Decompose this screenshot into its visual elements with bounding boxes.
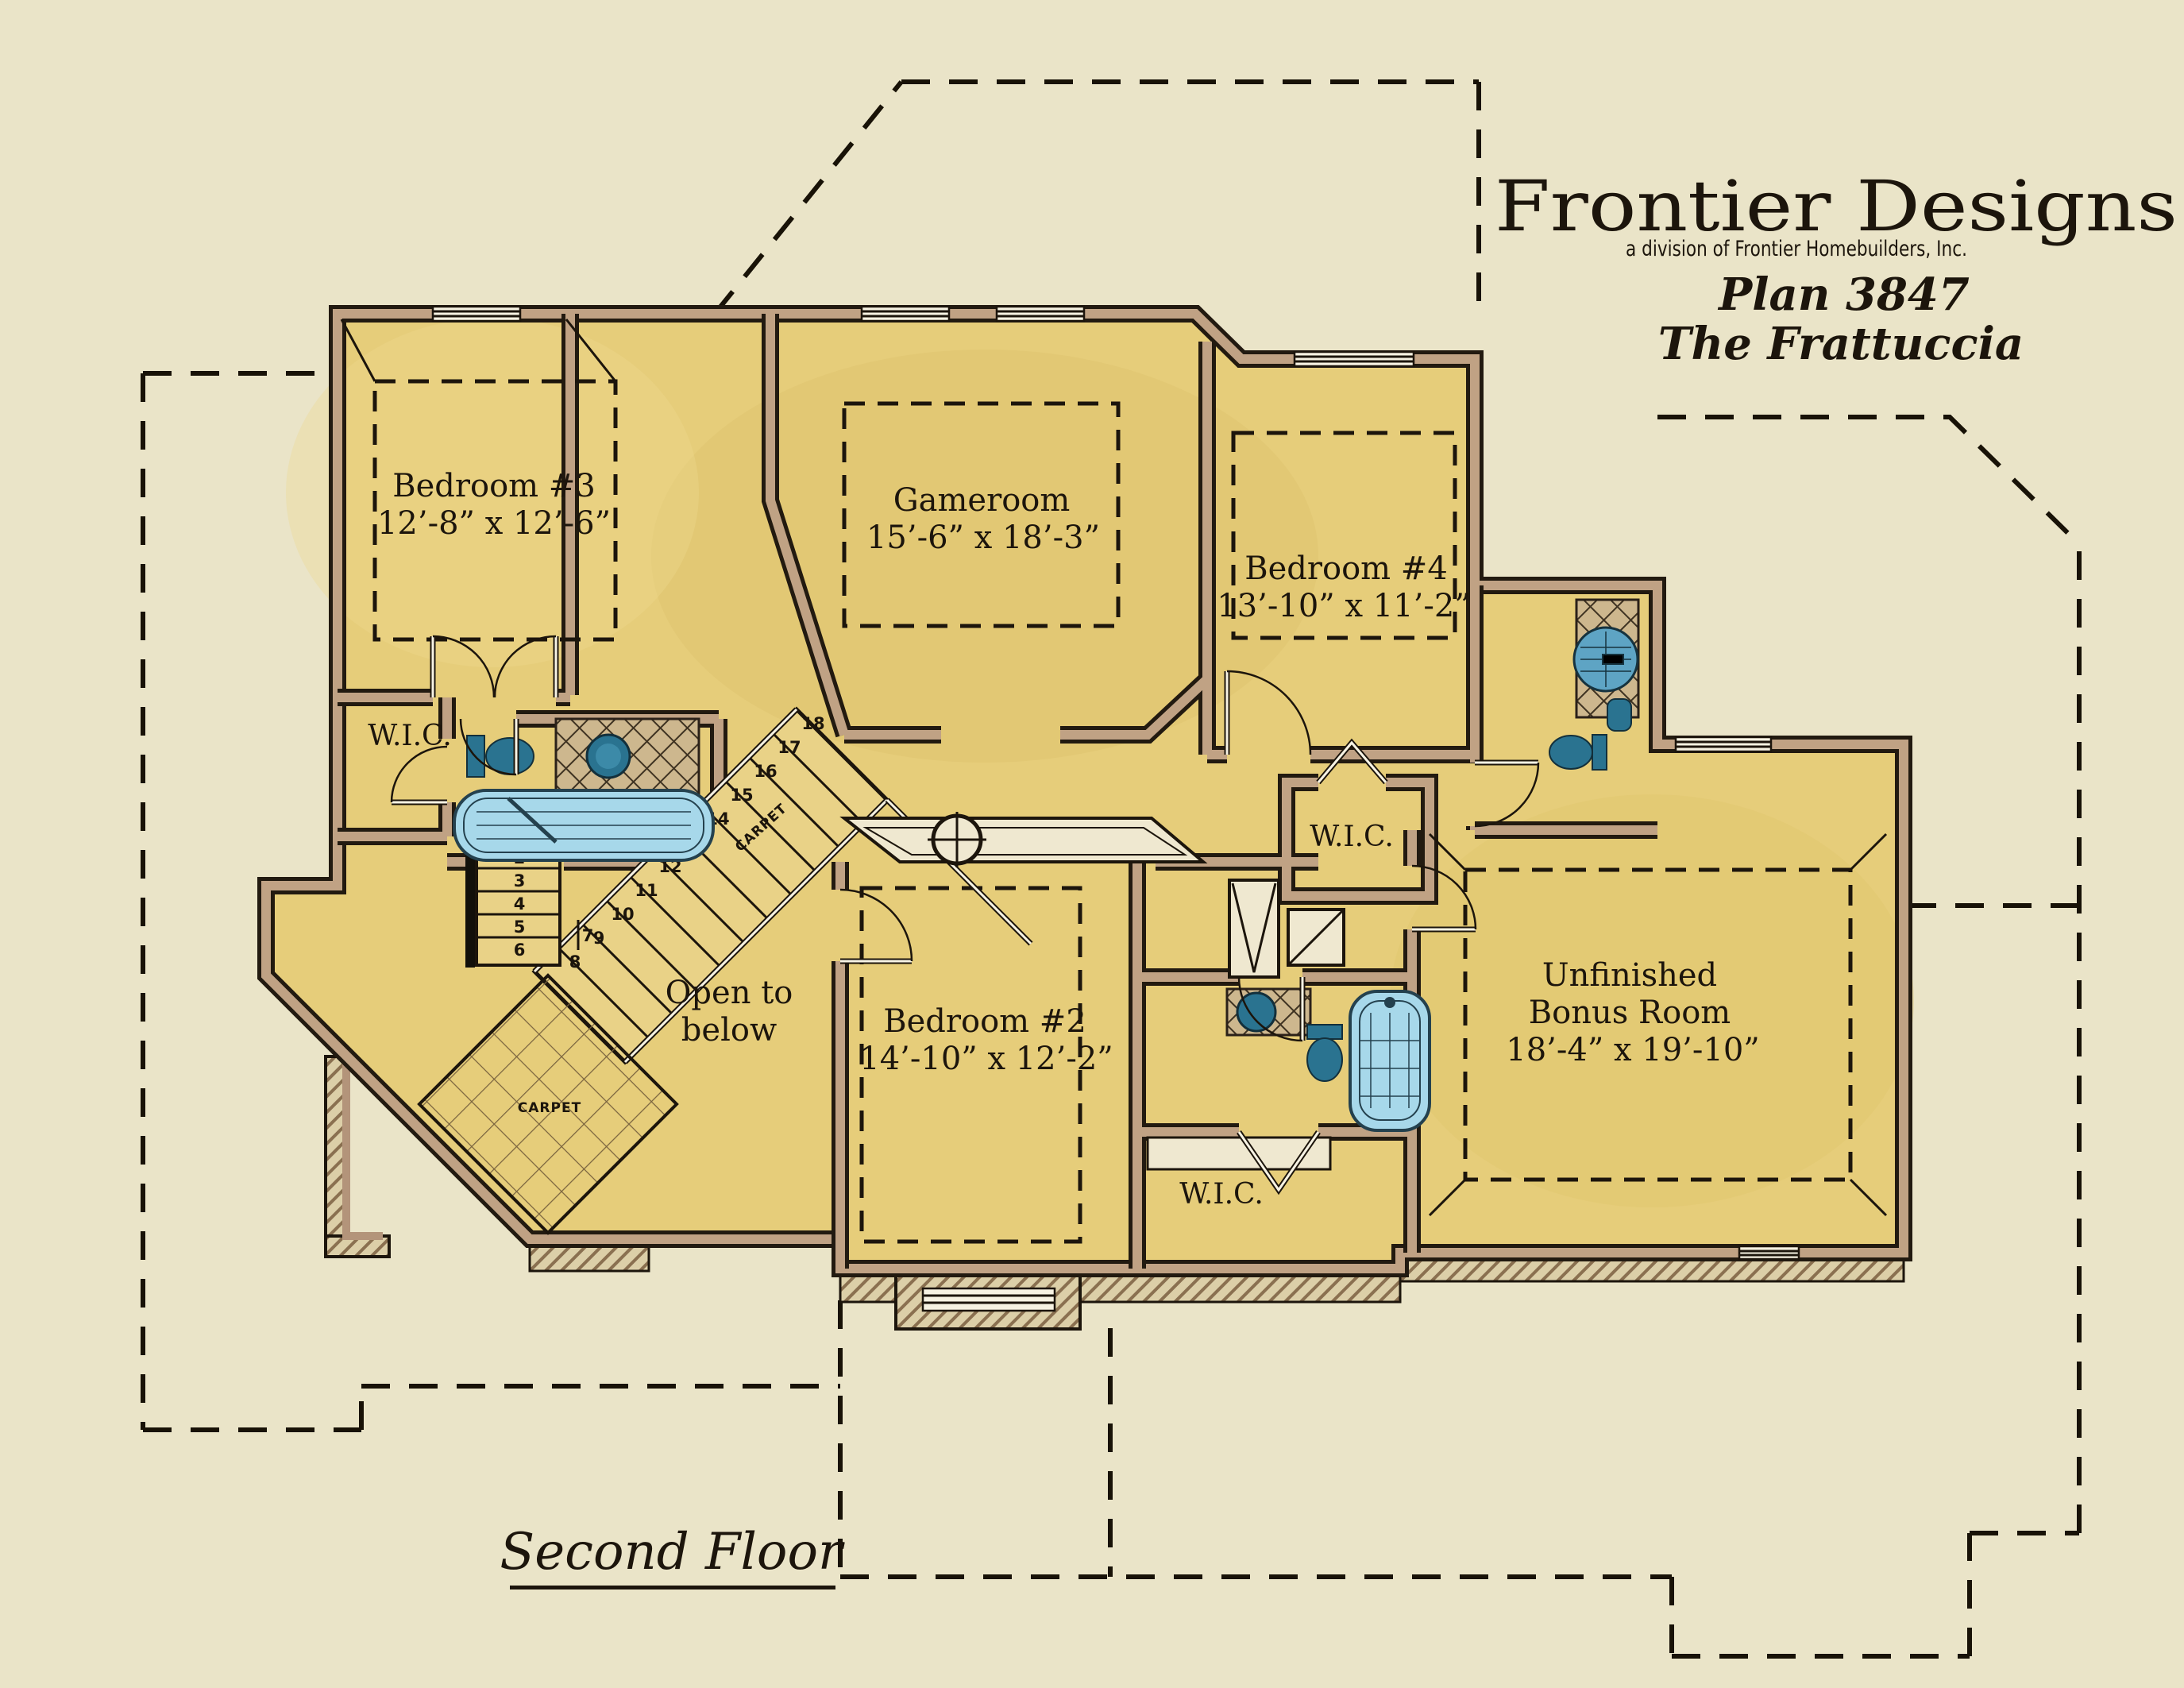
toilet-icon [1549, 735, 1607, 770]
window-icon [1295, 352, 1414, 366]
stair-tread-number: 7 [582, 926, 594, 945]
stair-tread-number: 18 [801, 714, 824, 733]
open-below-line1: Open to [666, 975, 793, 1011]
stair-tread-number: 16 [754, 762, 777, 781]
stair-tread-number: 9 [593, 929, 605, 948]
window-icon [862, 307, 949, 321]
bedroom3-dims: 12’-8” x 12’-6” [377, 505, 611, 542]
wic-bottom-label: W.I.C. [1179, 1178, 1264, 1211]
shower-icon [1574, 628, 1638, 691]
plan-name: The Frattuccia [1658, 318, 2024, 370]
bathtub-icon [454, 790, 713, 860]
bedroom3-label: Bedroom #3 [392, 468, 596, 504]
bedroom2-label: Bedroom #2 [883, 1003, 1086, 1040]
floor-label: Second Floor [500, 1523, 845, 1590]
floorplan-svg: 1 2 3 4 5 6 7 8 9 10 11 12 13 14 15 16 1… [0, 0, 2184, 1688]
open-below-line2: below [681, 1012, 777, 1049]
stair-tread-number: 4 [514, 894, 526, 914]
bedroom4-label: Bedroom #4 [1244, 550, 1448, 587]
bay-window [896, 1269, 1080, 1329]
plan-number: Plan 3847 [1717, 268, 1970, 321]
bedroom2-dims: 14’-10” x 12’-2” [859, 1041, 1113, 1077]
gameroom-label: Gameroom [893, 482, 1071, 519]
window-icon [997, 307, 1084, 321]
toilet-icon [467, 736, 534, 777]
second-floor-label: Second Floor [500, 1523, 845, 1582]
bathtub-icon [1350, 991, 1430, 1130]
plant-shelf-niche [844, 812, 1203, 867]
bonus-room-line2: Bonus Room [1529, 995, 1731, 1031]
window-icon [433, 307, 520, 321]
stair-tread-number: 15 [730, 786, 753, 805]
stair-tread-number: 3 [514, 871, 526, 890]
bedroom4-dims: 13’-10” x 11’-2” [1217, 588, 1471, 624]
wic-middle-label: W.I.C. [1310, 821, 1394, 853]
floorplan-page: 1 2 3 4 5 6 7 8 9 10 11 12 13 14 15 16 1… [0, 0, 2184, 1688]
company-name: Frontier Designs [1495, 165, 2178, 247]
gameroom-dims: 15’-6” x 18’-3” [866, 520, 1100, 556]
stair-tread-number: 17 [778, 738, 801, 757]
stair-tread-number: 11 [635, 881, 658, 900]
bonus-room-line1: Unfinished [1542, 957, 1717, 994]
sink-icon [1607, 699, 1631, 731]
stair-tread-number: 6 [514, 941, 526, 960]
window-icon [1676, 737, 1771, 751]
toilet-icon [1307, 1025, 1342, 1081]
company-division: a division of Frontier Homebuilders, Inc… [1626, 237, 1967, 261]
window-icon [1739, 1246, 1799, 1259]
stair-tread-number: 10 [611, 905, 634, 924]
wic-left-label: W.I.C. [368, 720, 452, 752]
bonus-room-dims: 18’-4” x 19’-10” [1506, 1032, 1760, 1068]
stair-tread-number: 8 [569, 952, 581, 971]
stair-tread-number: 5 [514, 917, 526, 937]
carpet-label-lower: CARPET [518, 1100, 581, 1116]
